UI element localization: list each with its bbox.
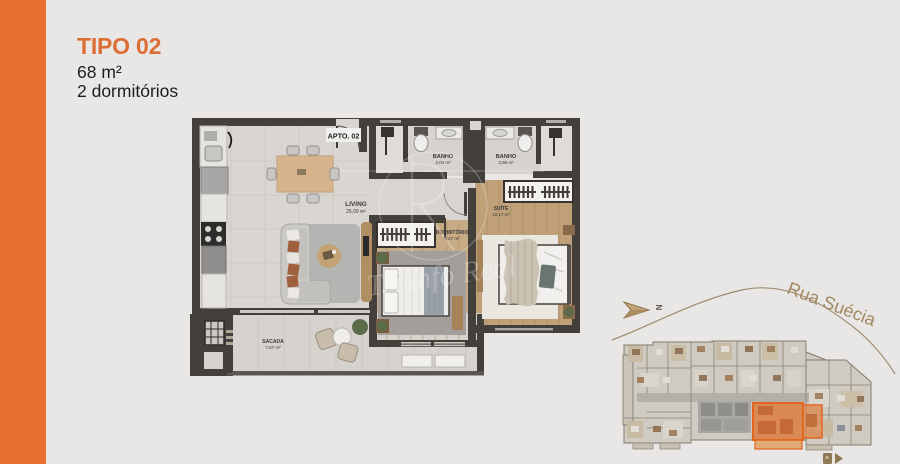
svg-text:APTO. 02: APTO. 02 [328,132,360,141]
svg-text:68 m²: 68 m² [77,62,122,82]
svg-text:7,57 m²: 7,57 m² [265,345,281,350]
svg-text:SUÍTE: SUÍTE [494,204,509,212]
svg-text:3,04 m²: 3,04 m² [435,160,451,165]
svg-text:2 dormitórios: 2 dormitórios [77,81,178,101]
svg-text:10,17 m²: 10,17 m² [492,212,510,217]
svg-text:TIPO 02: TIPO 02 [77,33,161,59]
svg-text:2,96 m²: 2,96 m² [498,160,514,165]
svg-text:LIVING: LIVING [345,201,367,208]
svg-text:25,09 m²: 25,09 m² [346,209,366,215]
svg-text:N: N [654,305,663,311]
